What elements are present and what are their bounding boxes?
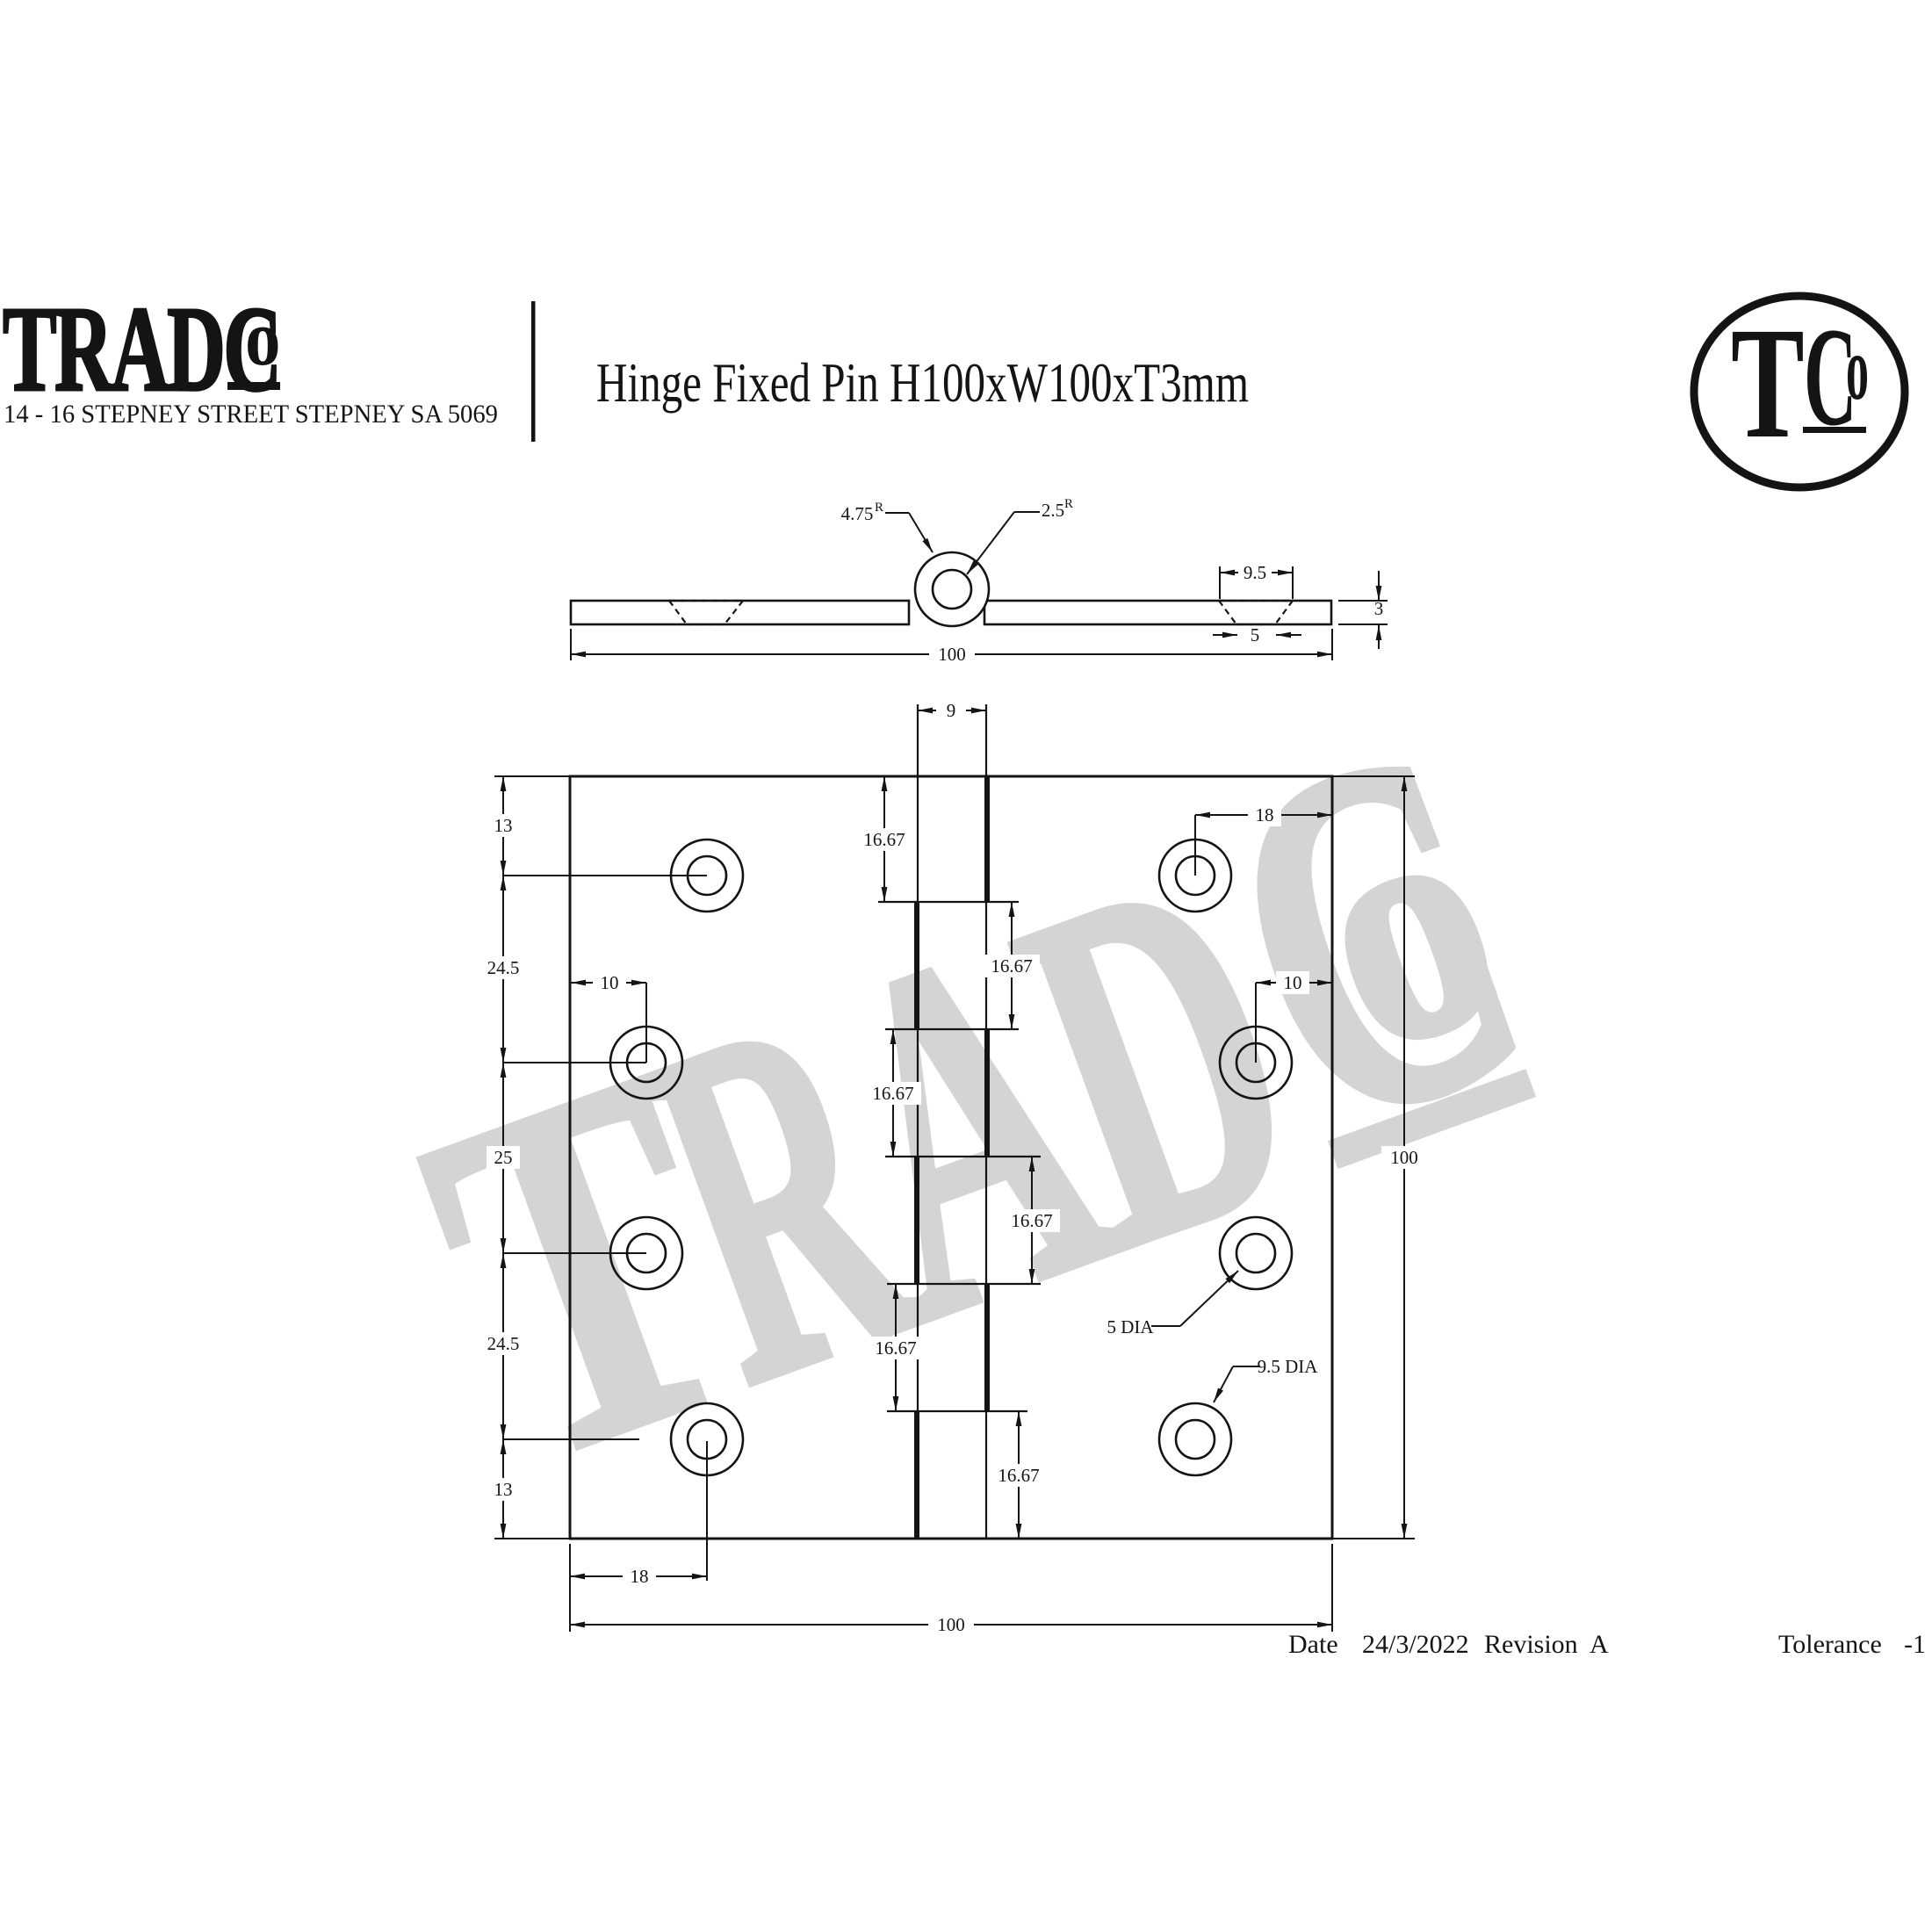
svg-text:100: 100 bbox=[1390, 1147, 1418, 1168]
svg-text:13: 13 bbox=[494, 815, 513, 836]
svg-text:A: A bbox=[1590, 1630, 1609, 1659]
svg-text:16.67: 16.67 bbox=[1011, 1210, 1052, 1231]
svg-text:Hinge Fixed Pin H100xW100xT3mm: Hinge Fixed Pin H100xW100xT3mm bbox=[596, 351, 1249, 414]
svg-text:10: 10 bbox=[601, 972, 619, 993]
svg-text:R: R bbox=[875, 501, 883, 515]
svg-text:o: o bbox=[245, 294, 281, 382]
svg-text:5: 5 bbox=[1251, 624, 1260, 645]
svg-text:4.75: 4.75 bbox=[841, 503, 874, 524]
svg-text:5 DIA: 5 DIA bbox=[1107, 1316, 1154, 1337]
svg-text:18: 18 bbox=[1256, 804, 1274, 825]
svg-text:24.5: 24.5 bbox=[487, 1333, 520, 1354]
svg-text:16.67: 16.67 bbox=[991, 955, 1032, 977]
svg-text:T: T bbox=[1731, 294, 1805, 471]
svg-text:25: 25 bbox=[494, 1147, 513, 1168]
svg-text:100: 100 bbox=[938, 644, 966, 665]
svg-text:24.5: 24.5 bbox=[487, 957, 520, 978]
svg-text:14 - 16 STEPNEY STREET STEPNEY: 14 - 16 STEPNEY STREET STEPNEY SA 5069 bbox=[4, 400, 498, 429]
svg-text:9.5: 9.5 bbox=[1244, 562, 1266, 583]
svg-text:16.67: 16.67 bbox=[875, 1337, 916, 1359]
svg-text:Date: Date bbox=[1288, 1630, 1338, 1659]
svg-text:16.67: 16.67 bbox=[998, 1465, 1039, 1486]
svg-text:3: 3 bbox=[1374, 598, 1384, 619]
svg-text:2.5: 2.5 bbox=[1042, 500, 1064, 521]
svg-text:Revision: Revision bbox=[1484, 1630, 1578, 1659]
svg-text:10: 10 bbox=[1284, 972, 1302, 993]
svg-text:16.67: 16.67 bbox=[863, 829, 905, 850]
svg-text:18: 18 bbox=[631, 1566, 649, 1587]
svg-text:o: o bbox=[1846, 318, 1869, 419]
svg-text:TRADC: TRADC bbox=[3, 281, 279, 416]
svg-text:16.67: 16.67 bbox=[872, 1083, 913, 1104]
svg-text:24/3/2022: 24/3/2022 bbox=[1362, 1630, 1469, 1659]
svg-text:13: 13 bbox=[494, 1479, 513, 1500]
svg-text:9: 9 bbox=[947, 700, 956, 721]
svg-text:9.5 DIA: 9.5 DIA bbox=[1258, 1356, 1319, 1377]
svg-text:Tolerance: Tolerance bbox=[1778, 1630, 1882, 1659]
svg-text:100: 100 bbox=[937, 1614, 965, 1635]
svg-text:R: R bbox=[1064, 497, 1073, 511]
svg-text:-1: -1 bbox=[1904, 1630, 1926, 1659]
